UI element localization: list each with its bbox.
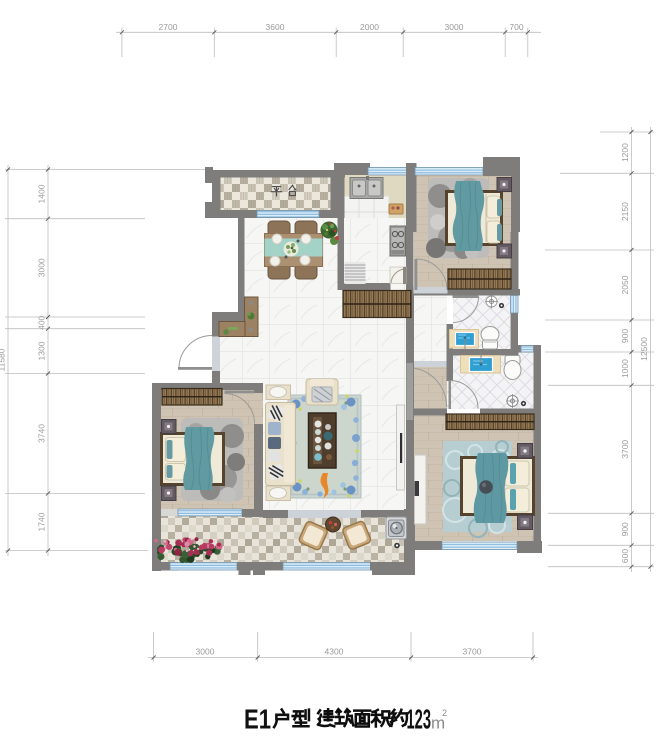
- svg-text:1200: 1200: [620, 143, 630, 162]
- svg-text:600: 600: [620, 549, 630, 563]
- svg-text:700: 700: [509, 22, 523, 32]
- svg-text:3000: 3000: [445, 22, 464, 32]
- svg-text:11580: 11580: [0, 348, 7, 371]
- svg-text:3740: 3740: [37, 424, 47, 443]
- svg-text:3700: 3700: [463, 647, 482, 657]
- svg-text:3000: 3000: [37, 258, 47, 277]
- svg-text:2150: 2150: [620, 202, 630, 221]
- svg-text:1400: 1400: [37, 184, 47, 203]
- svg-text:1300: 1300: [37, 341, 47, 360]
- svg-text:2050: 2050: [620, 275, 630, 294]
- svg-text:900: 900: [620, 329, 630, 343]
- svg-text:E1: E1: [244, 704, 271, 735]
- svg-text:1000: 1000: [620, 359, 630, 378]
- svg-text:3700: 3700: [620, 440, 630, 459]
- svg-text:2000: 2000: [360, 22, 379, 32]
- svg-text:2700: 2700: [159, 22, 178, 32]
- svg-text:123: 123: [407, 704, 432, 735]
- svg-text:3600: 3600: [266, 22, 285, 32]
- svg-text:2: 2: [442, 708, 447, 718]
- svg-text:900: 900: [620, 522, 630, 536]
- svg-text:3000: 3000: [196, 647, 215, 657]
- svg-text:400: 400: [37, 315, 47, 329]
- svg-text:4300: 4300: [325, 647, 344, 657]
- svg-text:12500: 12500: [639, 337, 649, 361]
- svg-text:1740: 1740: [37, 512, 47, 531]
